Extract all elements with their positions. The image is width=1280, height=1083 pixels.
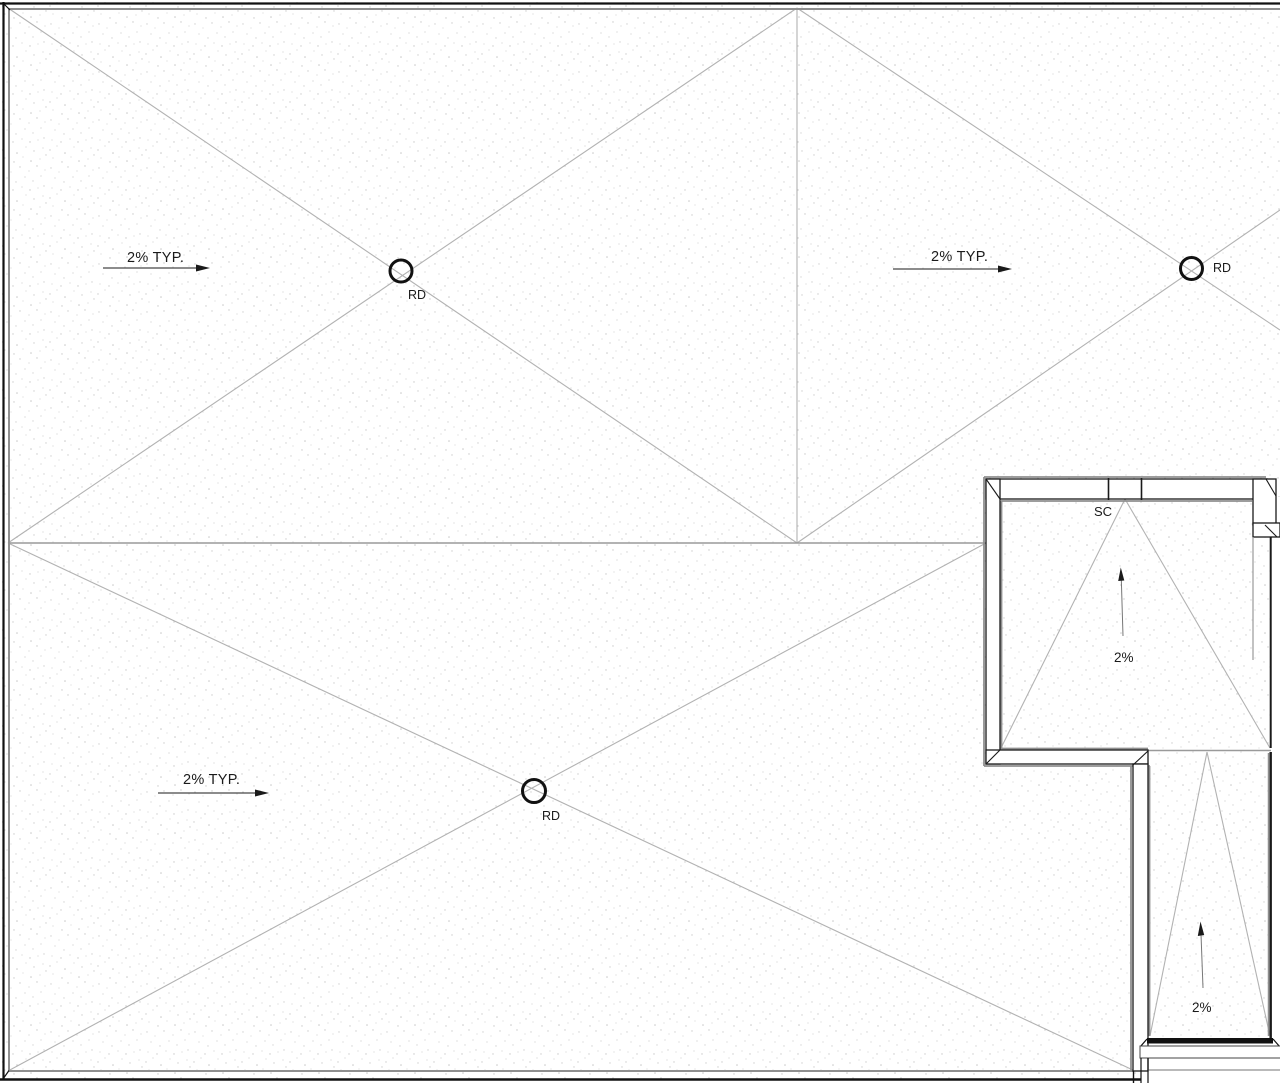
slope-label-upper-right: 2% TYP. — [931, 249, 988, 265]
slope-label-strip: 2% — [1192, 1000, 1212, 1015]
drain-label-lower: RD — [542, 809, 560, 823]
enclosure-wall-notch-vertical — [1253, 479, 1276, 525]
slope-label-enclosure: 2% — [1114, 650, 1134, 665]
enclosure-wall-notch-horizontal — [1253, 523, 1280, 537]
offroof-right-sliver — [1272, 497, 1280, 1044]
enclosure-wall-top — [986, 479, 1267, 499]
strip-wall-west — [1133, 764, 1148, 1071]
concrete-stipple-texture — [2, 2, 1280, 1080]
drain-label-upper-left: RD — [408, 288, 426, 302]
roof-plan-drawing: 2% TYP. 2% TYP. 2% TYP. RD RD RD SC 2% 2… — [0, 0, 1280, 1083]
strip-south-edge — [1147, 1038, 1273, 1044]
enclosure-wall-bottom — [986, 750, 1148, 764]
parapet-cap-band — [1140, 1046, 1280, 1058]
slope-label-upper-left: 2% TYP. — [127, 250, 184, 266]
slope-label-lower: 2% TYP. — [183, 772, 240, 788]
drain-label-upper-right: RD — [1213, 261, 1231, 275]
scupper-label: SC — [1094, 504, 1112, 519]
enclosure-wall-left — [986, 479, 1000, 764]
roof-plan-canvas: 2% TYP. 2% TYP. 2% TYP. RD RD RD SC 2% 2… — [0, 0, 1280, 1083]
